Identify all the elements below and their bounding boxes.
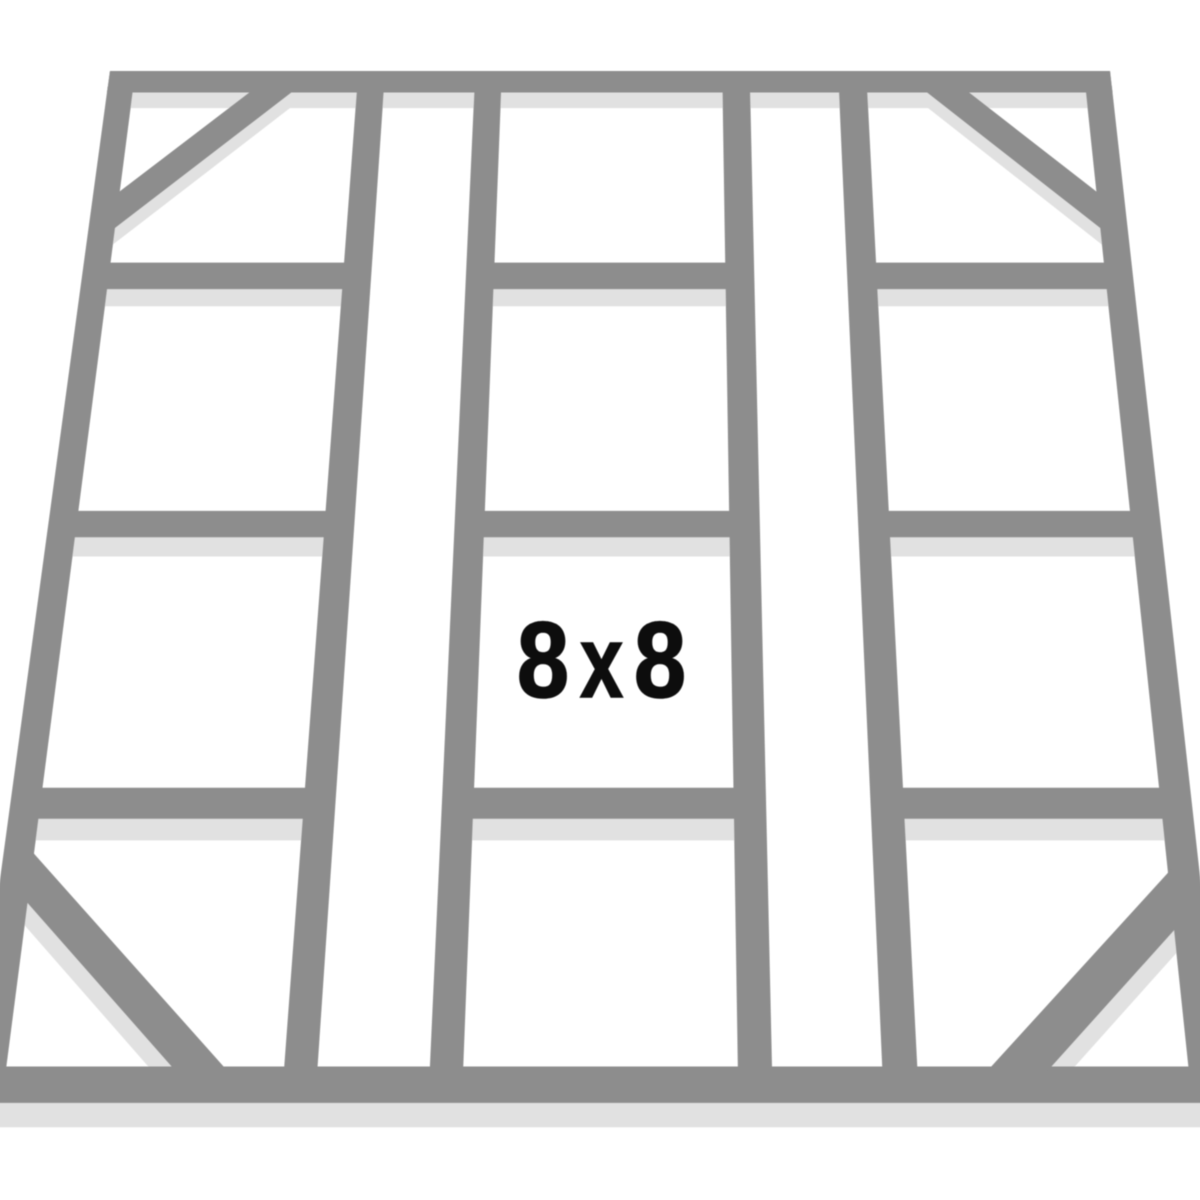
svg-text:8: 8 (634, 600, 686, 721)
svg-text:8: 8 (517, 600, 569, 721)
svg-text:x: x (580, 606, 623, 720)
